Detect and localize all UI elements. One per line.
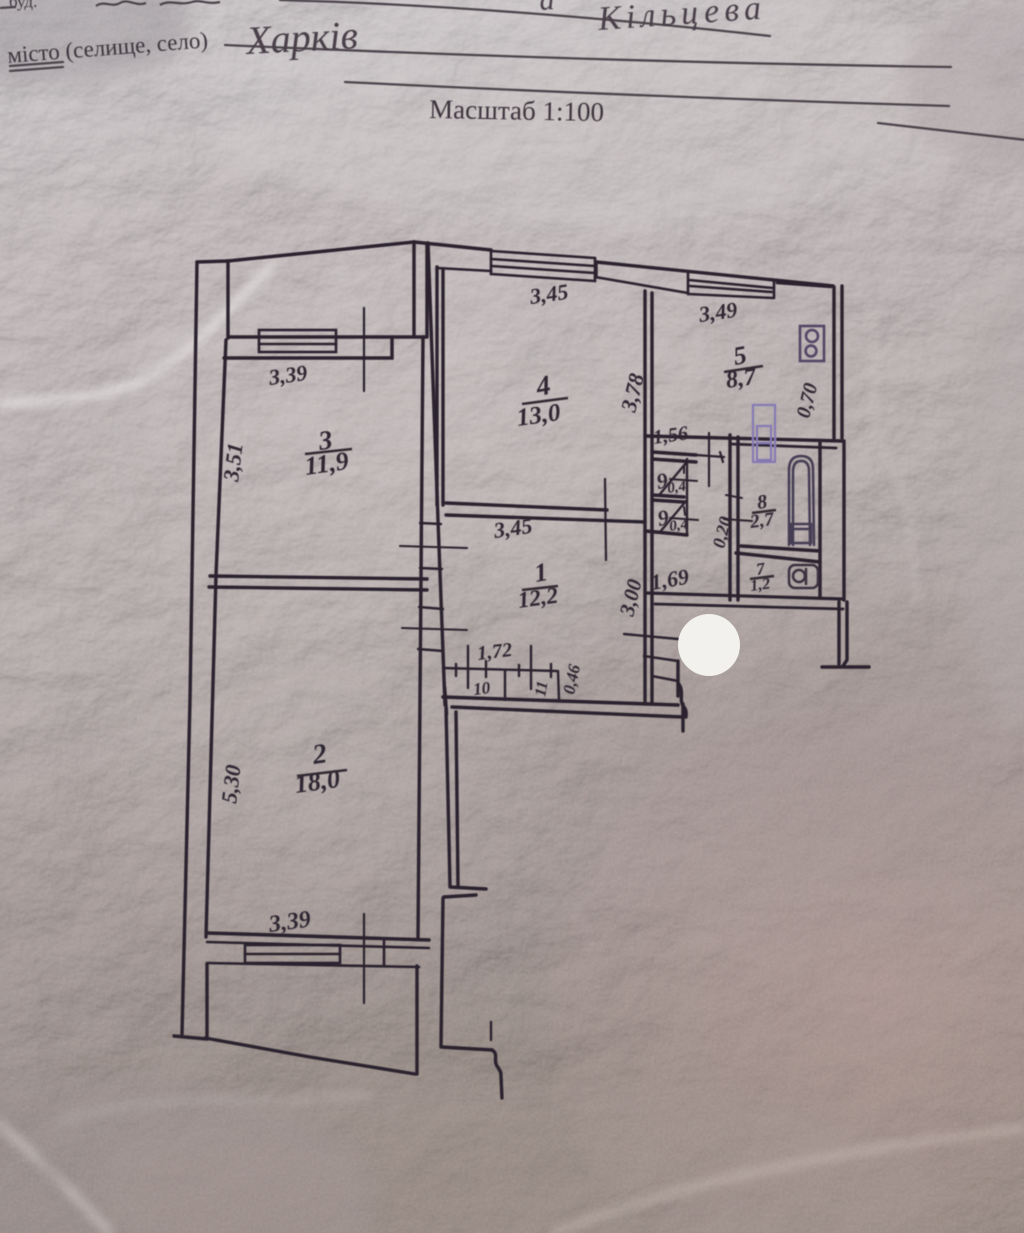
svg-text:0,4: 0,4 [668, 516, 689, 535]
svg-text:а: а [538, 0, 555, 17]
svg-text:5,30: 5,30 [216, 763, 246, 804]
svg-text:Харків: Харків [243, 12, 359, 63]
svg-text:11: 11 [532, 680, 551, 698]
svg-text:буд.: буд. [9, 0, 37, 11]
svg-text:1,72: 1,72 [476, 639, 513, 665]
svg-text:3,51: 3,51 [218, 441, 248, 483]
svg-text:Масштаб 1:100: Масштаб 1:100 [429, 94, 604, 127]
svg-text:0,4: 0,4 [666, 478, 687, 497]
svg-text:10: 10 [472, 678, 492, 699]
